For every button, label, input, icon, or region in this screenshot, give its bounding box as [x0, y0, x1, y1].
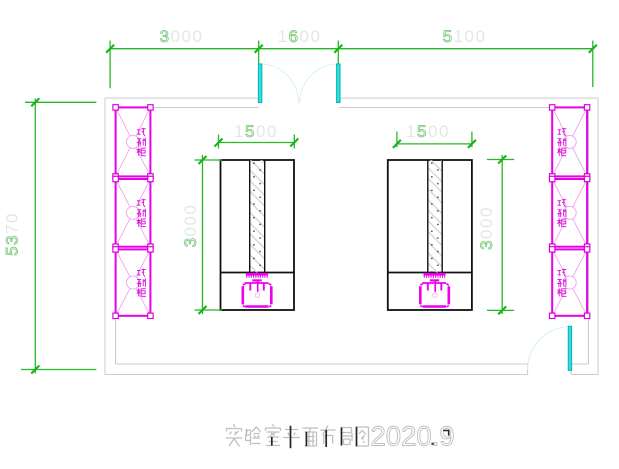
svg-text:5370: 5370 [2, 212, 21, 256]
svg-text:3000: 3000 [181, 204, 200, 248]
svg-text:5100: 5100 [443, 27, 487, 46]
svg-text:2020.9: 2020.9 [371, 421, 455, 452]
svg-text:1500: 1500 [406, 122, 450, 141]
svg-text:3000: 3000 [160, 27, 204, 46]
svg-text:1600: 1600 [278, 27, 322, 46]
svg-text:3000: 3000 [477, 206, 496, 250]
svg-text:1500: 1500 [234, 122, 278, 141]
